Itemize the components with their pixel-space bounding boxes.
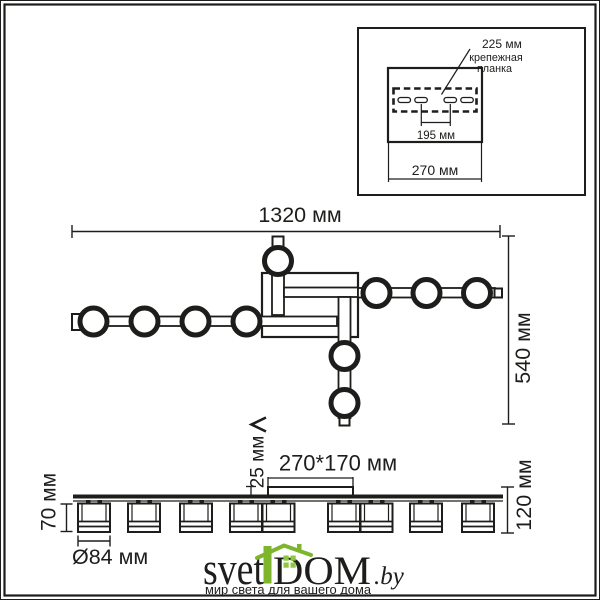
logo-by-text: .by [374, 563, 405, 590]
lamp-ring [131, 308, 158, 335]
shade [328, 501, 360, 533]
shade [263, 501, 295, 533]
dim-25-label: 25 мм [248, 436, 269, 489]
chimney-icon [297, 544, 302, 551]
ceiling-bar [73, 495, 503, 499]
shade [410, 501, 442, 533]
diagram-page: 225 мм крепежная планка 195 мм 270 мм 13… [0, 0, 600, 600]
lamp-ring [413, 280, 440, 307]
dim-d84-label: Ø84 мм [72, 545, 148, 569]
right-arm-inner-bar [284, 288, 358, 298]
dim-195-label: 195 мм [417, 130, 455, 142]
right-arm-end-tab [495, 289, 503, 298]
canopy-box [268, 487, 353, 496]
shade [78, 501, 110, 533]
dim-70-label: 70 мм [38, 473, 61, 531]
shade [462, 501, 494, 533]
dim-270-label: 270 мм [412, 162, 459, 178]
lamp-ring [363, 280, 390, 307]
shade [230, 501, 262, 533]
shade [128, 501, 160, 533]
dim-540-label: 540 мм [511, 312, 535, 383]
lamp-ring [182, 308, 209, 335]
lamp-ring [233, 308, 260, 335]
shades [78, 501, 494, 533]
shade [180, 501, 212, 533]
dim-25: 25 мм [246, 436, 269, 497]
dim-120-label: 120 мм [512, 459, 536, 530]
plank-label-line2: планка [477, 63, 512, 75]
lamp-ring [331, 390, 358, 417]
logo-tagline: мир света для вашего дома [205, 582, 372, 597]
dim-225-label: 225 мм [482, 37, 522, 51]
mounting-plate-inset: 225 мм крепежная планка 195 мм 270 мм [358, 28, 585, 195]
lamp-ring [464, 280, 491, 307]
lamp-ring [331, 343, 358, 370]
dim-1320-label: 1320 мм [258, 203, 341, 227]
fixture-drawing: 225 мм крепежная планка 195 мм 270 мм 13… [0, 0, 600, 600]
lamp-ring [265, 248, 292, 275]
dim-270x170-label: 270*170 мм [279, 451, 397, 476]
lamp-ring [80, 308, 107, 335]
shade [361, 501, 393, 533]
